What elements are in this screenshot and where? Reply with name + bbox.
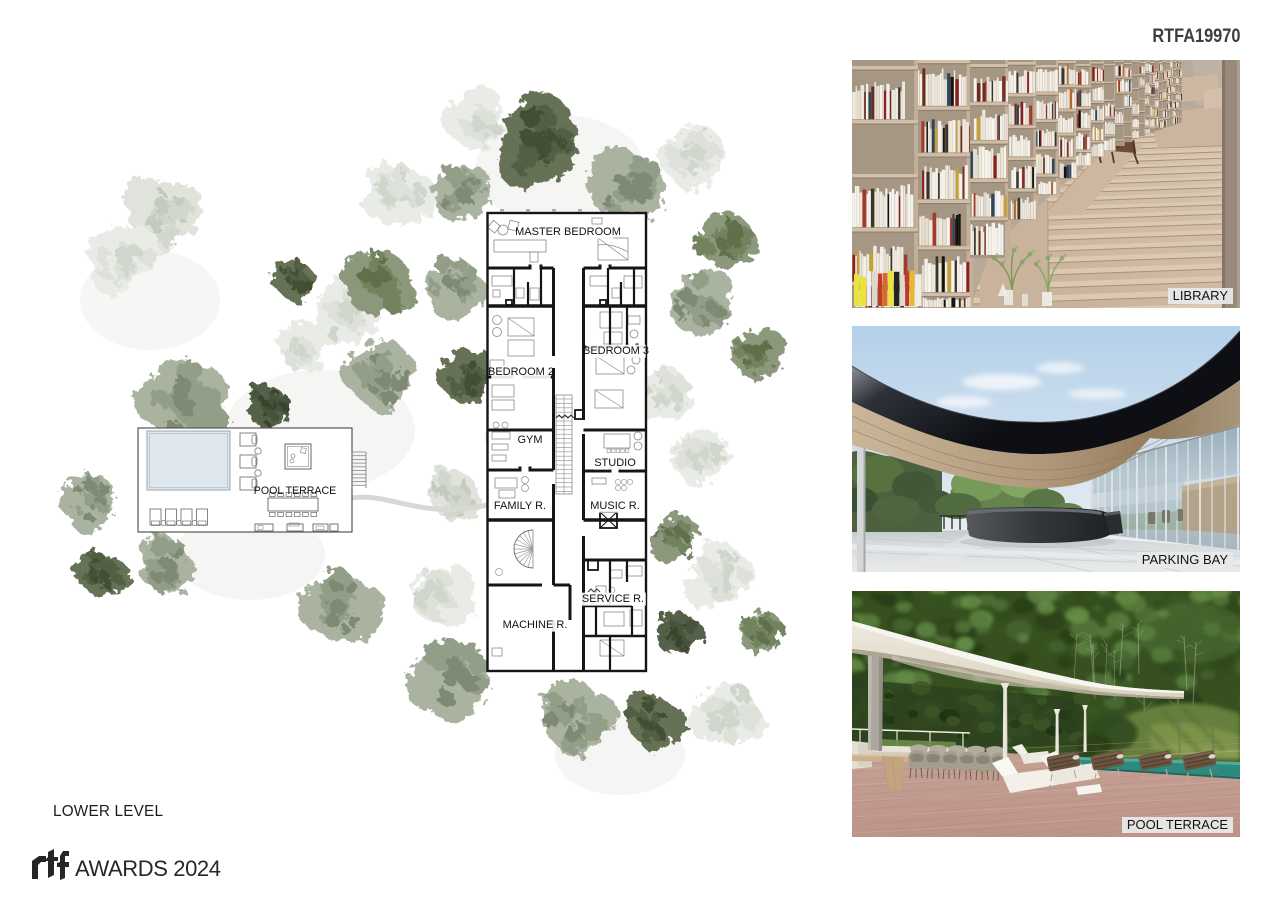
- svg-text:STUDIO: STUDIO: [594, 457, 636, 469]
- svg-text:MACHINE R.: MACHINE R.: [503, 619, 568, 631]
- svg-text:MUSIC R.: MUSIC R.: [590, 500, 640, 512]
- svg-text:MASTER BEDROOM: MASTER BEDROOM: [515, 226, 621, 238]
- svg-text:BEDROOM 3: BEDROOM 3: [583, 345, 649, 357]
- svg-text:FAMILY R.: FAMILY R.: [494, 500, 546, 512]
- svg-text:BEDROOM 2: BEDROOM 2: [488, 366, 554, 378]
- svg-text:POOL TERRACE: POOL TERRACE: [254, 485, 336, 497]
- svg-text:GYM: GYM: [517, 434, 542, 446]
- svg-text:SERVICE R.: SERVICE R.: [582, 593, 644, 605]
